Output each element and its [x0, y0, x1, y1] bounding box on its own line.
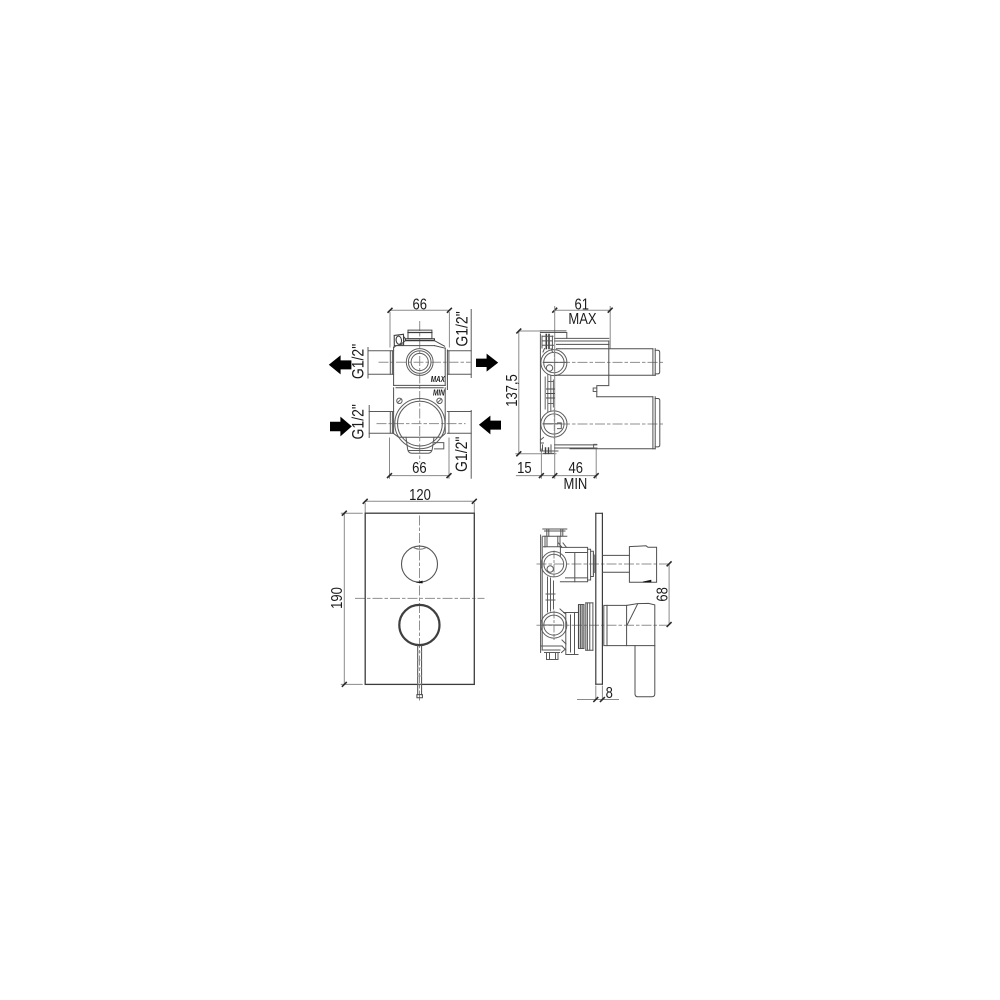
svg-text:MIN: MIN	[563, 476, 587, 493]
svg-text:68: 68	[654, 587, 671, 601]
svg-text:190: 190	[329, 587, 346, 609]
svg-text:MAX: MAX	[568, 311, 597, 328]
svg-text:MAX: MAX	[431, 374, 446, 384]
svg-text:G1/2": G1/2"	[453, 311, 471, 346]
svg-text:G1/2": G1/2"	[350, 344, 368, 379]
svg-text:G1/2": G1/2"	[453, 437, 471, 472]
svg-text:G1/2": G1/2"	[349, 404, 367, 439]
svg-text:120: 120	[409, 487, 431, 504]
svg-text:15: 15	[517, 460, 531, 477]
svg-text:MIN: MIN	[433, 388, 445, 398]
svg-text:66: 66	[412, 296, 426, 313]
svg-text:137,5: 137,5	[504, 374, 521, 407]
svg-text:8: 8	[606, 685, 613, 702]
svg-text:66: 66	[412, 460, 426, 477]
